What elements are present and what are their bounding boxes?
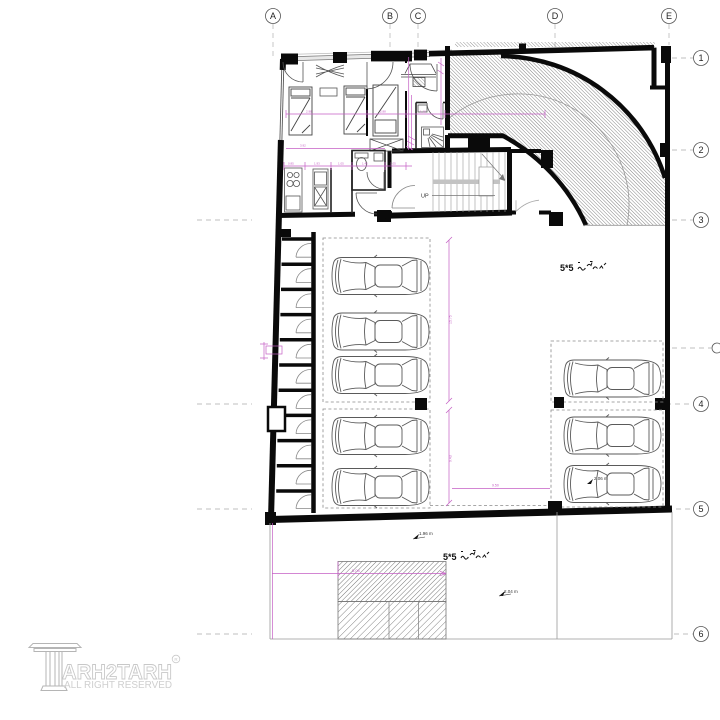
svg-text:1.05: 1.05 (338, 162, 344, 166)
svg-text:5: 5 (698, 504, 703, 514)
svg-text:1.10: 1.10 (420, 110, 426, 114)
svg-text:E: E (666, 11, 672, 21)
svg-text:1.05: 1.05 (390, 162, 396, 166)
svg-text:1.93: 1.93 (314, 162, 320, 166)
svg-text:2: 2 (698, 145, 703, 155)
svg-text:D: D (552, 11, 559, 21)
svg-text:UP: UP (421, 194, 429, 200)
svg-text:9.43: 9.43 (449, 455, 453, 462)
svg-text:5.04: 5.04 (352, 568, 361, 573)
svg-text:6: 6 (698, 629, 703, 639)
svg-text:2.06 m: 2.06 m (594, 476, 608, 481)
svg-text:C: C (415, 11, 422, 21)
svg-text:1.96 m: 1.96 m (419, 531, 433, 536)
svg-text:2.88: 2.88 (380, 110, 386, 114)
svg-text:ALL RIGHT RESERVED: ALL RIGHT RESERVED (64, 680, 172, 691)
svg-text:5*5: 5*5 (443, 552, 457, 562)
svg-text:3: 3 (698, 215, 703, 225)
svg-text:1: 1 (698, 53, 703, 63)
svg-text:4: 4 (698, 399, 703, 409)
svg-text:15.75: 15.75 (449, 315, 453, 324)
svg-text:A: A (270, 11, 276, 21)
svg-text:2.98: 2.98 (306, 110, 312, 114)
svg-text:9.50: 9.50 (492, 484, 499, 488)
svg-text:B: B (387, 11, 393, 21)
svg-text:5*5: 5*5 (560, 263, 574, 273)
svg-text:2.04 m: 2.04 m (504, 589, 518, 594)
svg-text:0.85: 0.85 (288, 162, 294, 166)
svg-text:1.46: 1.46 (362, 162, 368, 166)
svg-text:3.92: 3.92 (300, 144, 306, 148)
